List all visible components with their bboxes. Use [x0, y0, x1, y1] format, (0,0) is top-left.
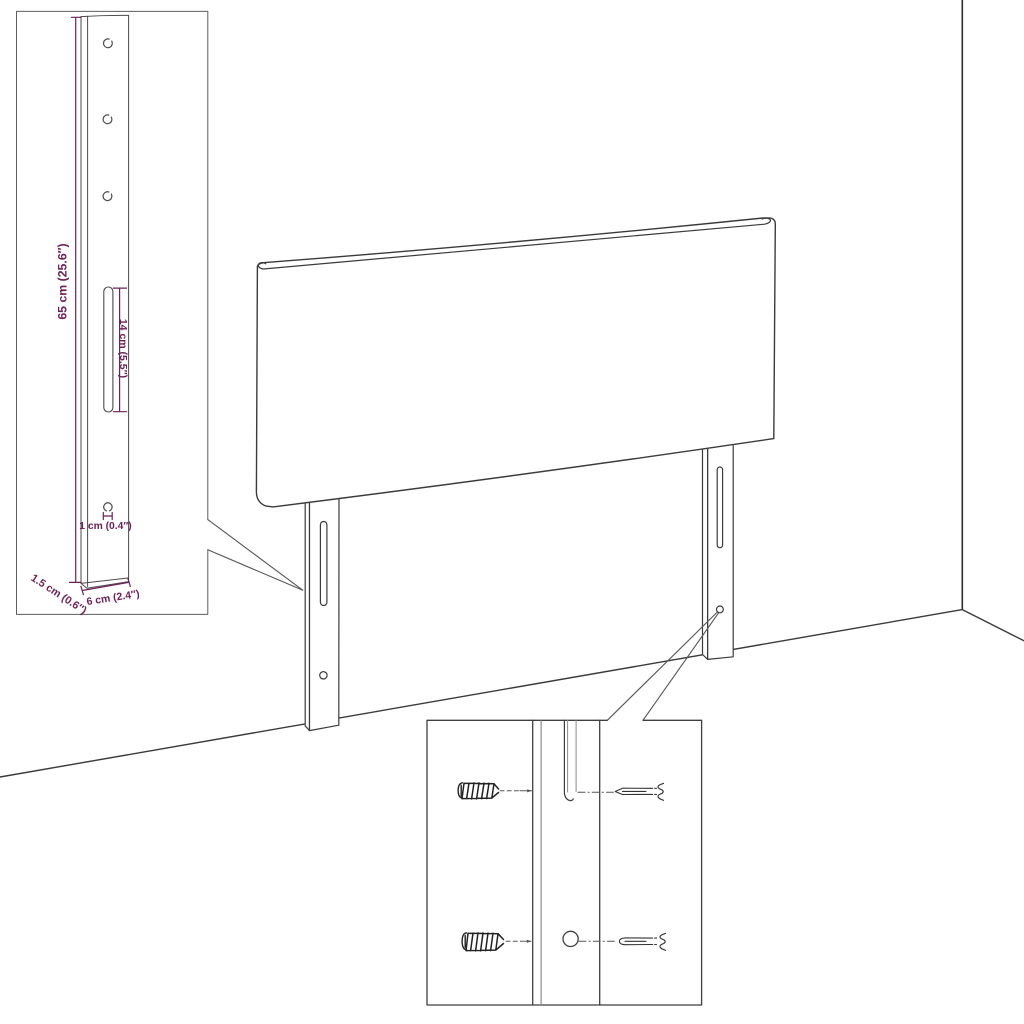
svg-text:6 cm (2.4″): 6 cm (2.4″) [86, 588, 141, 608]
svg-text:65 cm (25.6″): 65 cm (25.6″) [56, 243, 70, 319]
svg-text:1.5 cm (0.6″): 1.5 cm (0.6″) [29, 572, 90, 617]
svg-text:1 cm (0.4″): 1 cm (0.4″) [79, 521, 131, 532]
svg-text:14 cm (5.5″): 14 cm (5.5″) [117, 319, 129, 378]
